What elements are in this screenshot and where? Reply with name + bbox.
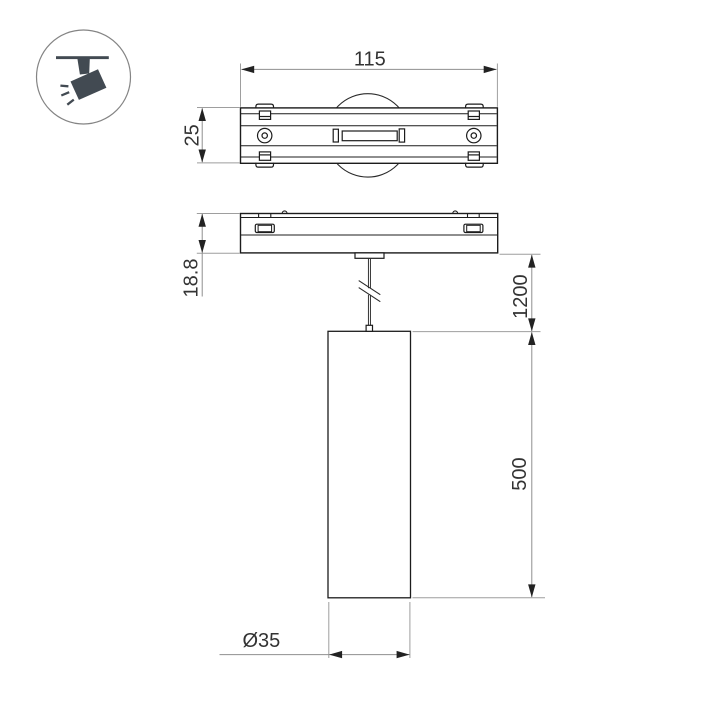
svg-text:1200: 1200 — [510, 274, 532, 319]
svg-text:Ø35: Ø35 — [242, 630, 280, 652]
svg-text:25: 25 — [181, 124, 203, 146]
svg-text:500: 500 — [509, 457, 531, 490]
svg-text:115: 115 — [354, 49, 386, 71]
svg-text:18.8: 18.8 — [181, 259, 203, 298]
